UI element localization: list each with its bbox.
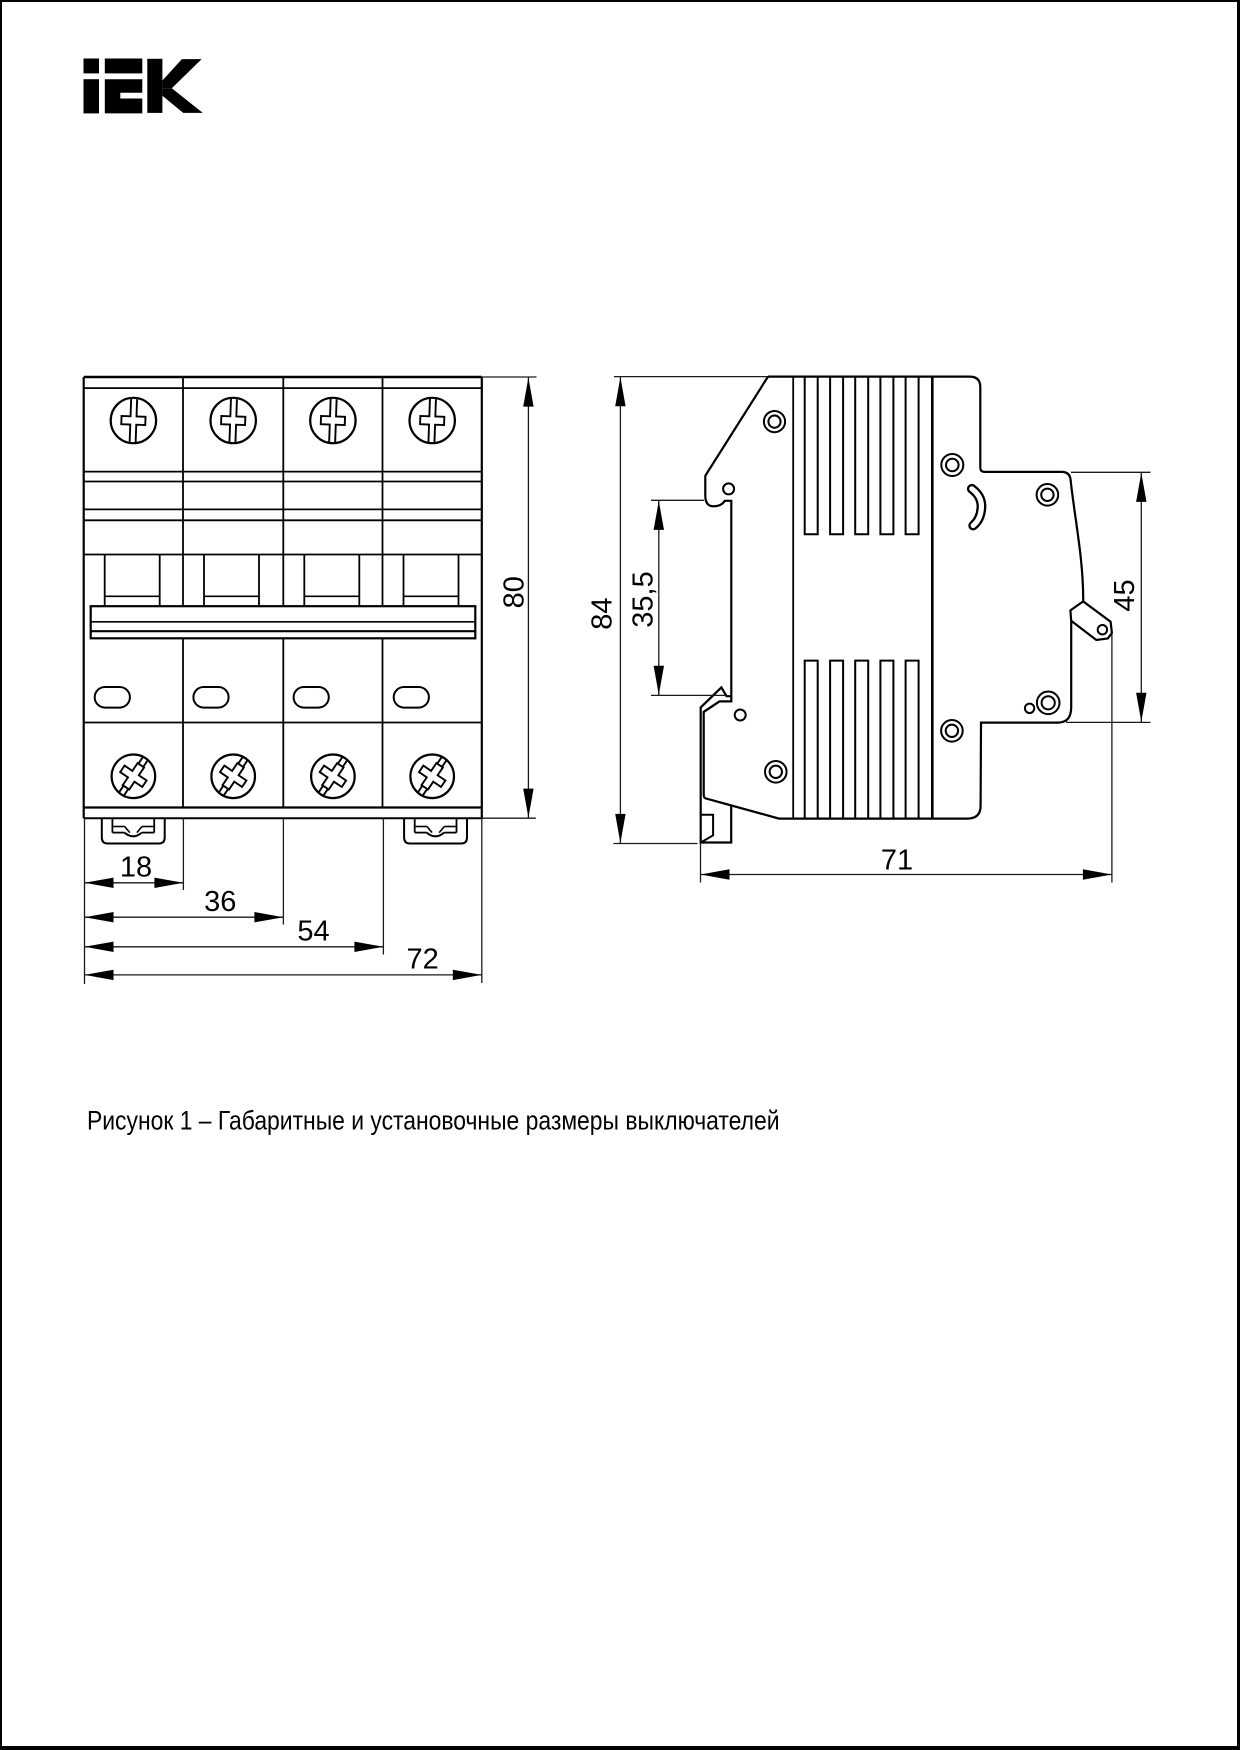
svg-text:71: 71 xyxy=(881,845,913,877)
svg-text:80: 80 xyxy=(498,576,530,608)
svg-text:35,5: 35,5 xyxy=(628,571,660,627)
svg-text:72: 72 xyxy=(406,944,438,976)
svg-text:45: 45 xyxy=(1109,579,1141,611)
svg-text:Рисунок 1 – Габаритные и устан: Рисунок 1 – Габаритные и установочные ра… xyxy=(87,1105,780,1136)
svg-text:18: 18 xyxy=(120,852,152,884)
svg-text:36: 36 xyxy=(204,886,236,918)
svg-text:84: 84 xyxy=(586,597,618,629)
svg-text:54: 54 xyxy=(297,916,329,948)
